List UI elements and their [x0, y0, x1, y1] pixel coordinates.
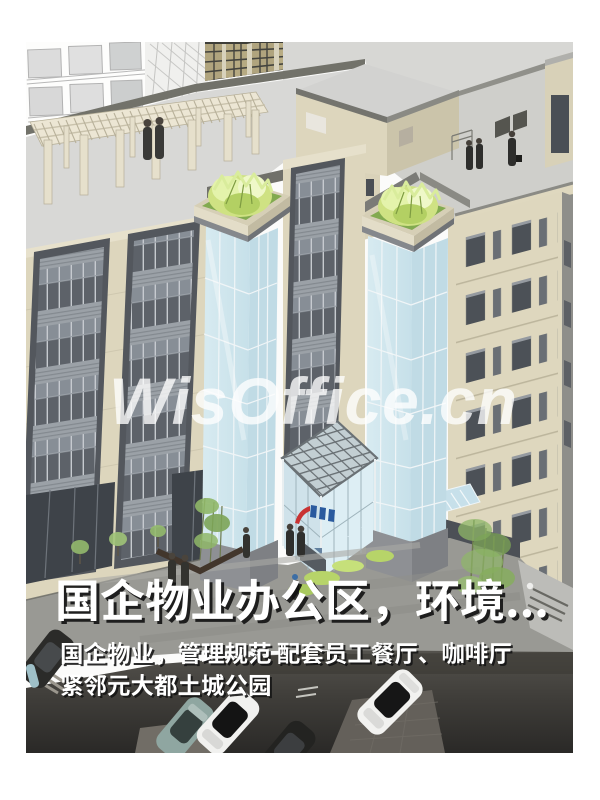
- svg-text:WisOffice.cn: WisOffice.cn: [109, 364, 517, 438]
